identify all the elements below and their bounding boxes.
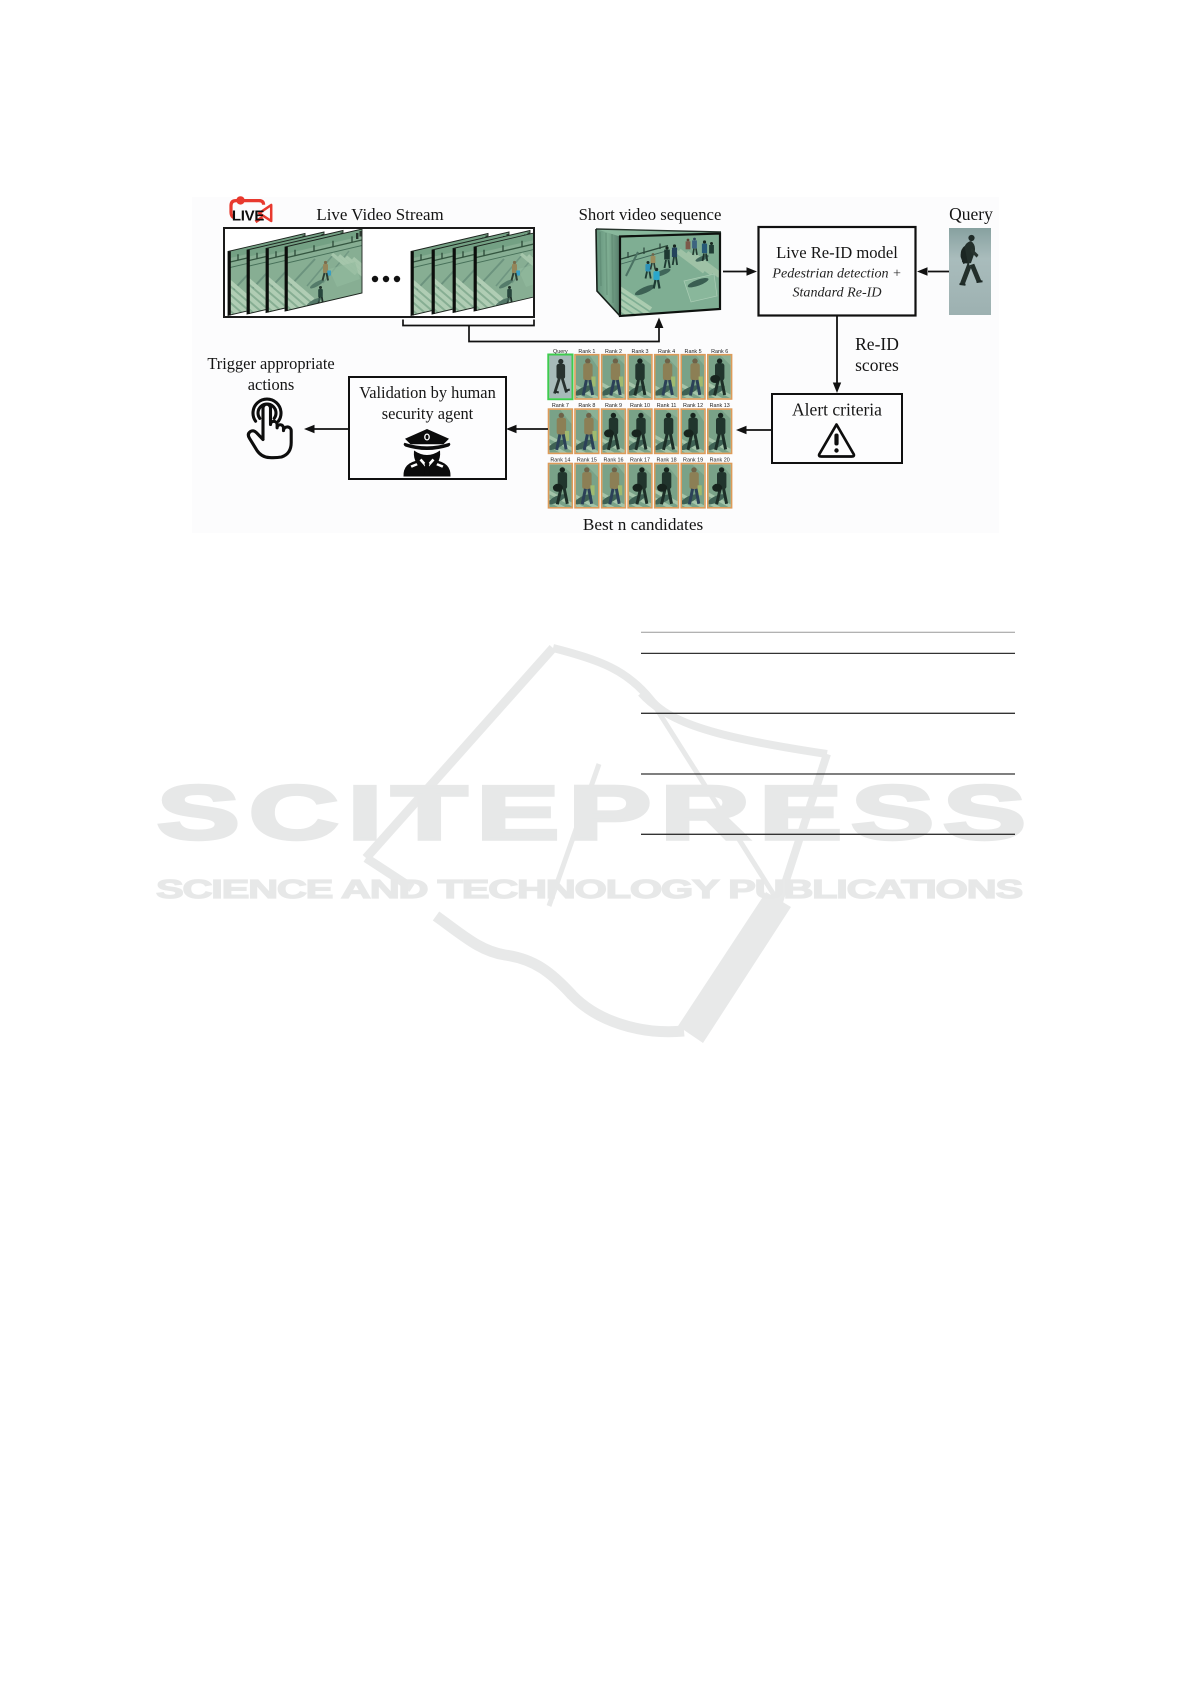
svg-text:Standard Re-ID: Standard Re-ID xyxy=(792,285,881,301)
svg-text:security agent: security agent xyxy=(382,404,474,423)
svg-text:Pedestrian detection +: Pedestrian detection + xyxy=(771,266,901,282)
svg-text:LIVE: LIVE xyxy=(232,208,264,225)
svg-text:Rank 1: Rank 1 xyxy=(578,349,595,355)
svg-text:Rank 18: Rank 18 xyxy=(657,458,677,464)
svg-text:Rank 10: Rank 10 xyxy=(630,403,650,409)
svg-text:Rank 17: Rank 17 xyxy=(630,458,650,464)
svg-text:Rank 9: Rank 9 xyxy=(605,403,622,409)
svg-text:Rank 14: Rank 14 xyxy=(550,458,570,464)
svg-text:Rank 5: Rank 5 xyxy=(685,349,702,355)
svg-text:Rank 11: Rank 11 xyxy=(657,403,677,409)
svg-text:Live Re-ID model: Live Re-ID model xyxy=(776,243,898,262)
svg-text:Rank 6: Rank 6 xyxy=(711,349,728,355)
svg-text:Rank 16: Rank 16 xyxy=(603,458,623,464)
svg-text:Live Video Stream: Live Video Stream xyxy=(316,205,443,224)
svg-text:Trigger appropriate: Trigger appropriate xyxy=(207,354,334,373)
svg-text:actions: actions xyxy=(248,375,294,394)
svg-text:Short video sequence: Short video sequence xyxy=(579,205,722,224)
svg-text:Rank 13: Rank 13 xyxy=(710,403,730,409)
svg-text:Validation by human: Validation by human xyxy=(359,383,496,402)
svg-text:SCIENCE AND TECHNOLOGY PUBLICA: SCIENCE AND TECHNOLOGY PUBLICATIONS xyxy=(156,876,1033,904)
svg-text:Rank 3: Rank 3 xyxy=(631,349,648,355)
svg-text:Rank 19: Rank 19 xyxy=(683,458,703,464)
svg-text:scores: scores xyxy=(855,355,899,375)
svg-text:SCITEPRESS: SCITEPRESS xyxy=(157,770,1042,855)
svg-text:Query: Query xyxy=(553,349,568,355)
svg-text:Rank 12: Rank 12 xyxy=(683,403,703,409)
svg-text:Re-ID: Re-ID xyxy=(855,334,899,354)
svg-text:Rank 4: Rank 4 xyxy=(658,349,675,355)
svg-text:Best n candidates: Best n candidates xyxy=(583,515,704,534)
svg-text:Rank 20: Rank 20 xyxy=(710,458,730,464)
svg-text:Query: Query xyxy=(949,204,993,224)
svg-text:Rank 7: Rank 7 xyxy=(552,403,569,409)
svg-text:Rank 2: Rank 2 xyxy=(605,349,622,355)
svg-text:Rank 8: Rank 8 xyxy=(578,403,595,409)
svg-text:Alert criteria: Alert criteria xyxy=(792,400,882,420)
svg-text:Rank 15: Rank 15 xyxy=(577,458,597,464)
